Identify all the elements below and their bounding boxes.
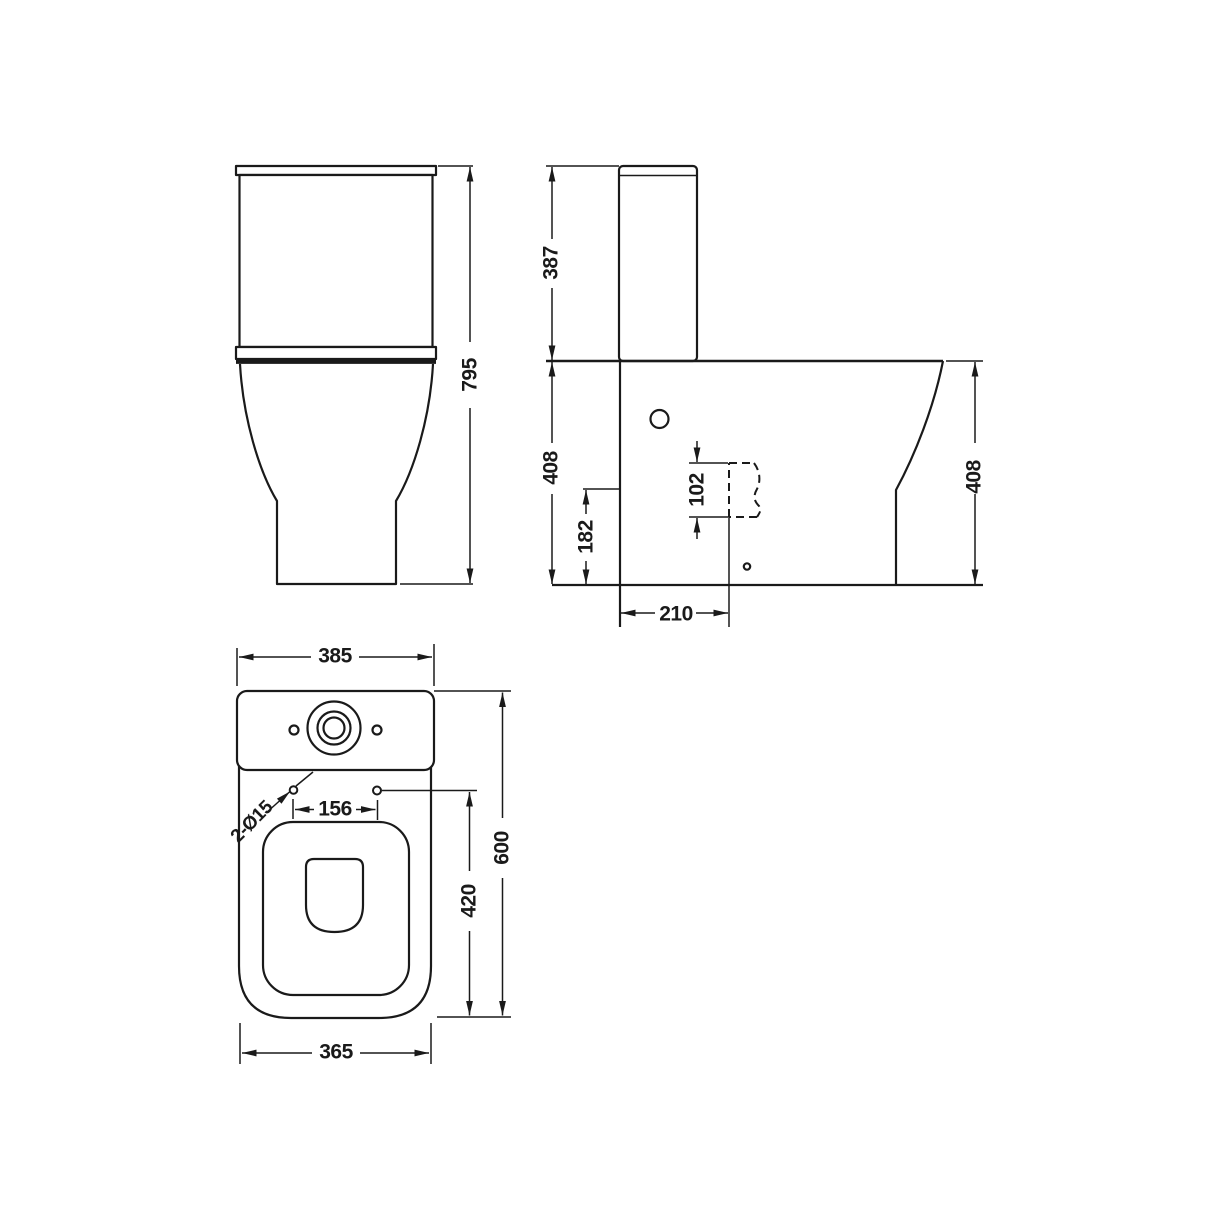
- side-fixing-hole: [651, 410, 669, 428]
- side-outlet-hidden-detail: [729, 463, 760, 517]
- front-pedestal: [240, 364, 433, 584]
- side-pan-back-profile: [896, 361, 943, 585]
- dim-408-pan-height-front: 408: [540, 362, 563, 584]
- dim-label-outlet-setout: 210: [659, 603, 693, 626]
- dim-label-pan-width: 365: [319, 1041, 353, 1064]
- dim-102-outlet-span: 102: [686, 441, 729, 539]
- side-view: 387 408 182 102 210: [540, 166, 986, 627]
- front-view: 795: [236, 166, 482, 584]
- dim-label-overall-height: 795: [459, 357, 482, 391]
- dim-408-pan-height-back: 408: [946, 361, 986, 584]
- side-small-hole: [744, 563, 750, 569]
- dim-label-pan-height-back: 408: [963, 459, 986, 493]
- technical-drawing-page: 795 387 408 182: [0, 0, 1214, 1214]
- dim-label-pan-height-front: 408: [540, 450, 563, 484]
- dim-label-fixing-centres: 156: [318, 798, 352, 821]
- dim-label-fixing-depth: 420: [458, 884, 481, 918]
- side-cistern: [619, 166, 697, 361]
- dim-600-overall-depth: 600: [434, 691, 514, 1017]
- dim-label-cistern-height: 387: [540, 246, 563, 280]
- dim-label-trap-height: 182: [575, 520, 598, 554]
- dim-label-overall-depth: 600: [491, 831, 514, 865]
- plan-cistern: [237, 691, 434, 770]
- dim-385-cistern-width: 385: [237, 644, 434, 686]
- plan-fixing-hole-left: [290, 786, 298, 794]
- dim-210-outlet-setout: 210: [621, 603, 728, 626]
- dim-label-cistern-width: 385: [318, 645, 352, 668]
- dim-365-pan-width: 365: [240, 1023, 431, 1064]
- plan-view: 2-Ø15 385 156 420: [227, 644, 514, 1064]
- dim-label-outlet-span: 102: [686, 473, 709, 507]
- toilet-technical-drawing: 795 387 408 182: [0, 0, 1214, 1214]
- front-cistern-body: [240, 175, 433, 347]
- front-cistern-lid: [236, 166, 436, 175]
- front-seat-rim: [236, 347, 436, 359]
- plan-bowl-opening: [306, 859, 363, 932]
- dim-387-cistern-height: 387: [540, 166, 620, 360]
- plan-fixing-hole-right: [373, 787, 381, 795]
- dim-182-trap-height: 182: [575, 489, 620, 584]
